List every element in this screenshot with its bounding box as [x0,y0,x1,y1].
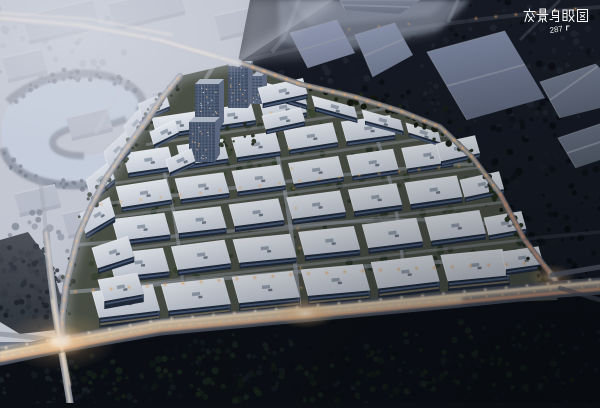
svg-text:287: 287 [549,24,564,35]
